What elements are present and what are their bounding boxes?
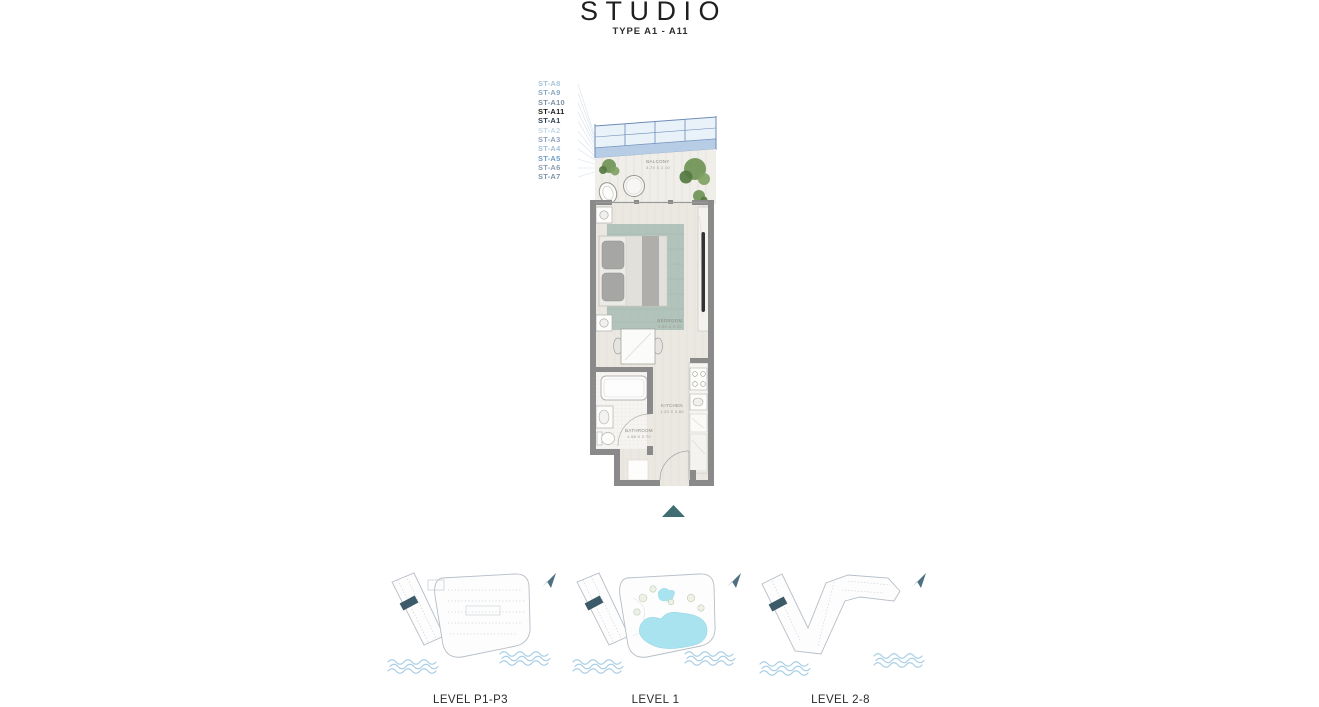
bedroom-dims: 3.50 X 5.20 <box>658 324 682 329</box>
nightstand <box>596 315 612 331</box>
page-title: STUDIO <box>505 0 795 25</box>
bed <box>599 236 667 306</box>
nightstand <box>596 207 612 223</box>
kitchen-dims: 1.20 X 3.80 <box>660 409 684 414</box>
north-arrow-icon <box>727 573 741 588</box>
pool <box>639 612 707 648</box>
kitchen <box>689 363 708 473</box>
toilet <box>597 432 615 445</box>
brochure-page: STUDIO TYPE A1 - A11 ST-A8ST-A9ST-A10ST-… <box>0 0 1319 707</box>
bathtub <box>601 376 647 400</box>
tv-console <box>698 207 709 331</box>
entrance-arrow-icon <box>662 505 685 517</box>
level-map-1: LEVEL 1 <box>563 566 748 707</box>
level-map-1-drawing <box>563 566 748 691</box>
level-map-p1-p3-label: LEVEL P1-P3 <box>378 694 563 706</box>
level-map-2-8-label: LEVEL 2-8 <box>748 694 933 706</box>
level-map-2-8: LEVEL 2-8 <box>748 566 933 707</box>
waves <box>760 654 924 676</box>
level-map-1-label: LEVEL 1 <box>563 694 748 706</box>
bedroom-label: BEDROOM <box>657 318 682 323</box>
north-arrow-icon <box>912 573 926 588</box>
floorplan: BALCONY 3.70 X 2.10 <box>537 76 732 521</box>
header: STUDIO TYPE A1 - A11 <box>505 0 795 37</box>
page-subtitle: TYPE A1 - A11 <box>505 26 795 37</box>
bathroom-label: BATHROOM <box>625 428 653 433</box>
dining-table <box>614 329 663 364</box>
kitchen-label: KITCHEN <box>661 403 683 408</box>
balcony-label: BALCONY <box>646 159 669 164</box>
level-map-p1-p3: LEVEL P1-P3 <box>378 566 563 707</box>
bathroom-dims: 1.58 X 2.70 <box>627 434 651 439</box>
stove <box>690 368 707 390</box>
building-outline <box>762 574 900 654</box>
level-map-p1-p3-drawing <box>378 566 563 691</box>
balcony-dims: 3.70 X 2.10 <box>646 165 670 170</box>
entry-mat <box>628 460 648 480</box>
balcony-table <box>624 176 645 197</box>
level-map-2-8-drawing <box>748 566 933 691</box>
north-arrow-icon <box>542 573 556 588</box>
